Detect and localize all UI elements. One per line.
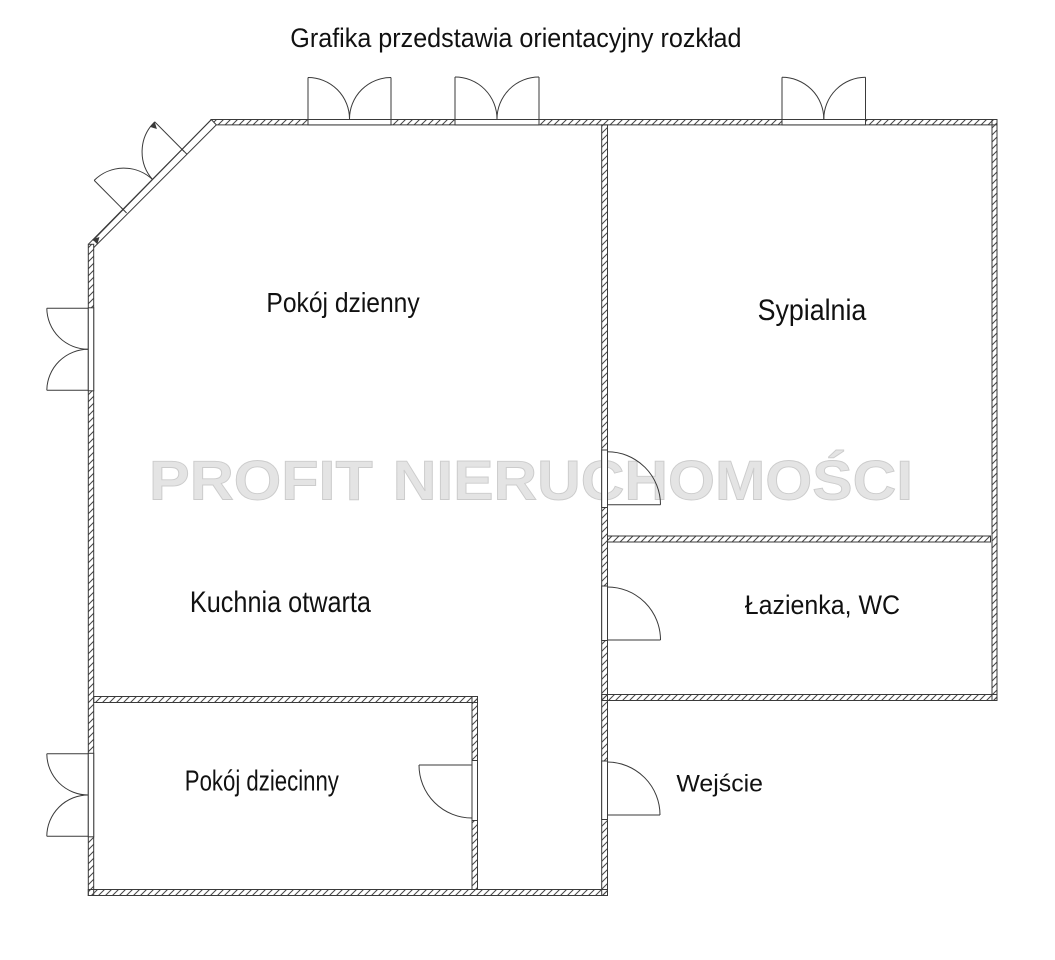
svg-text:Sypialnia: Sypialnia xyxy=(758,294,867,327)
svg-text:Łazienka, WC: Łazienka, WC xyxy=(745,590,900,620)
svg-text:Pokój dzienny: Pokój dzienny xyxy=(266,287,420,318)
svg-text:Kuchnia otwarta: Kuchnia otwarta xyxy=(190,586,371,619)
svg-text:Wejście: Wejście xyxy=(676,771,763,798)
svg-text:Pokój dziecinny: Pokój dziecinny xyxy=(185,766,340,798)
svg-text:Grafika przedstawia orientacyj: Grafika przedstawia orientacyjny rozkład xyxy=(290,23,741,53)
svg-text:PROFIT: PROFIT xyxy=(149,449,373,512)
svg-text:NIERUCHOMOŚCI: NIERUCHOMOŚCI xyxy=(393,449,913,512)
